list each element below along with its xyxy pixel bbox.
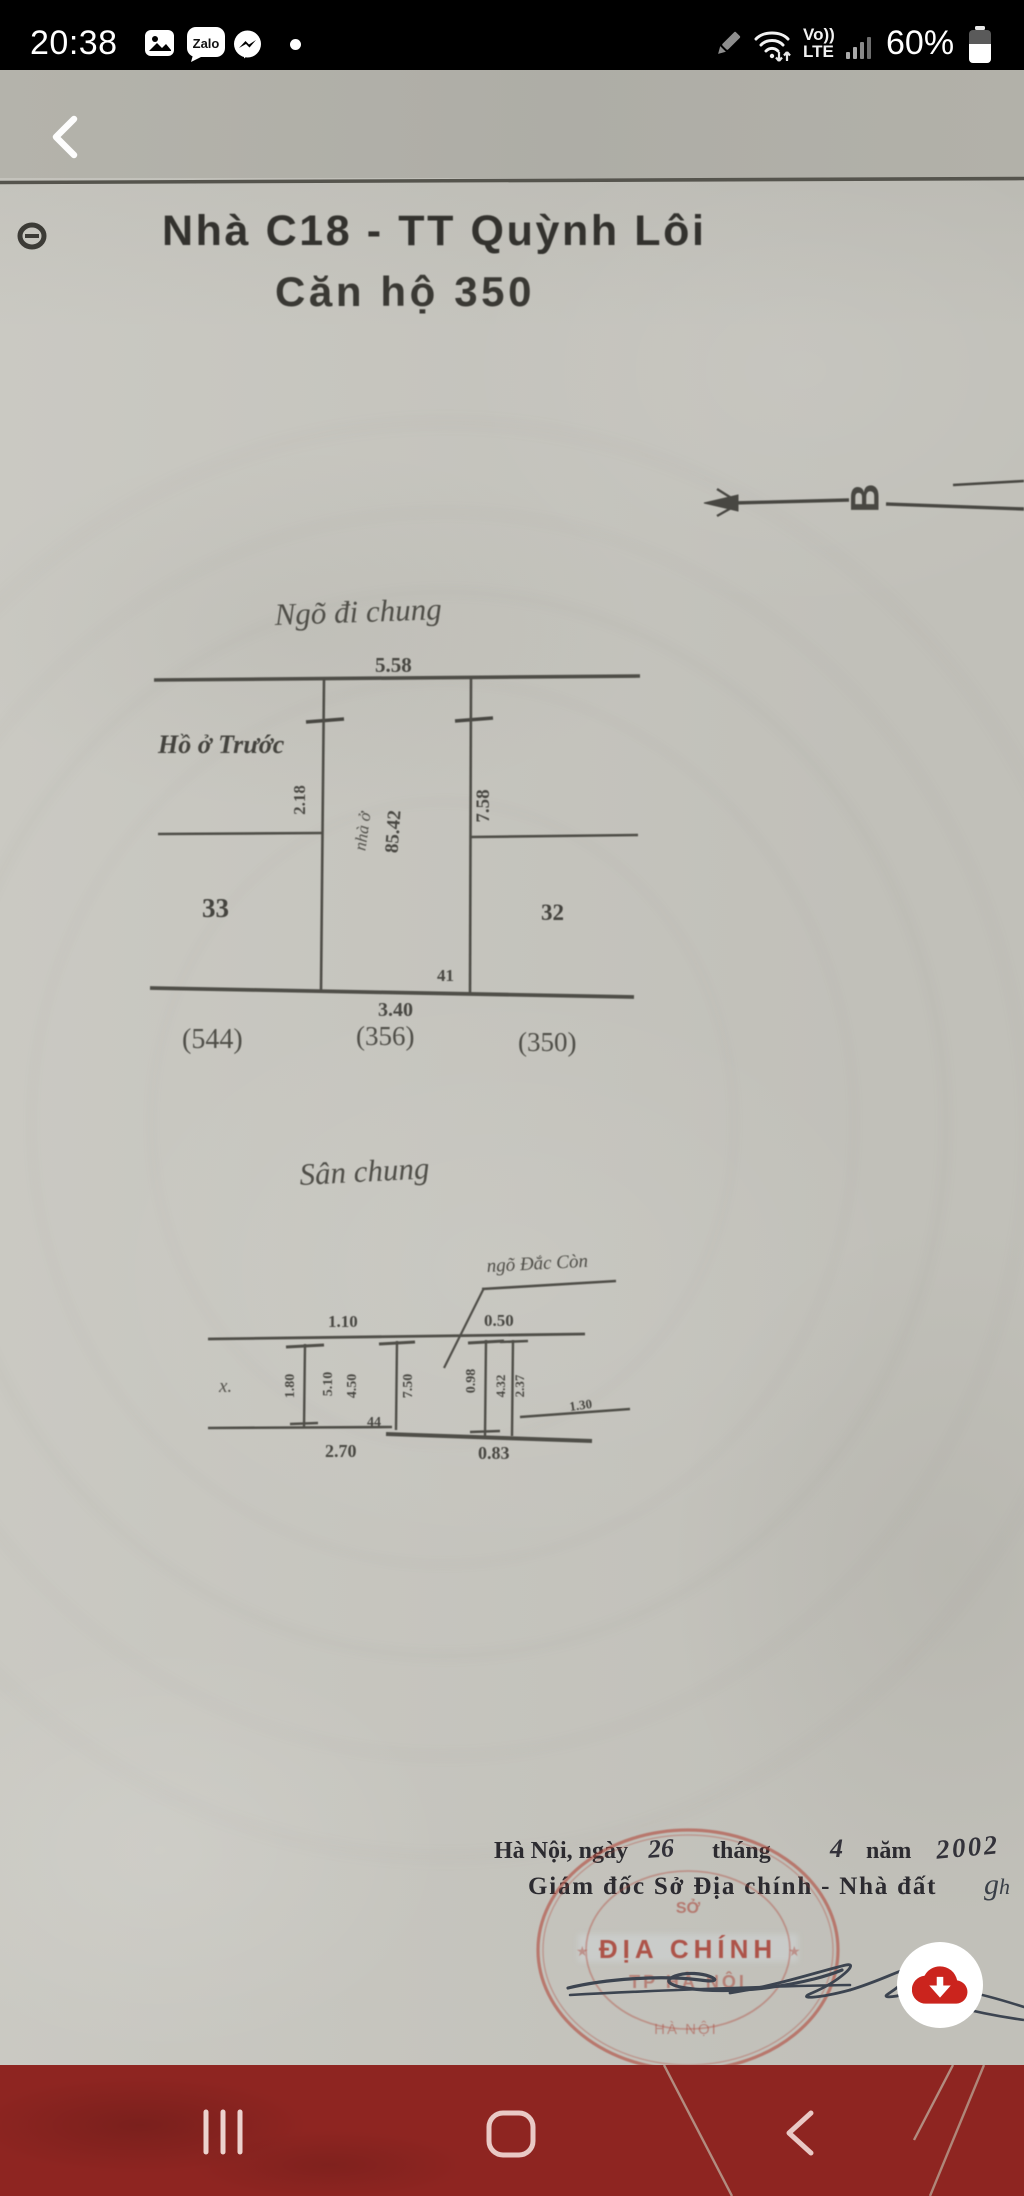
svg-text:(350): (350) — [518, 1027, 576, 1057]
svg-text:0.50: 0.50 — [484, 1311, 514, 1330]
svg-text:ngõ Đắc Còn: ngõ Đắc Còn — [486, 1251, 588, 1277]
svg-text:Sân chung: Sân chung — [299, 1150, 431, 1192]
svg-text:(544): (544) — [182, 1024, 243, 1055]
svg-text:1.10: 1.10 — [328, 1312, 358, 1331]
svg-text:1.30: 1.30 — [568, 1396, 593, 1414]
svg-text:2.18: 2.18 — [290, 785, 309, 815]
svg-text:7.50: 7.50 — [401, 1374, 416, 1399]
svg-text:SỞ: SỞ — [676, 1898, 701, 1917]
svg-text:7.58: 7.58 — [473, 789, 494, 822]
svg-text:2.70: 2.70 — [325, 1441, 357, 1461]
svg-text:0.98: 0.98 — [464, 1369, 479, 1394]
svg-text:85.42: 85.42 — [382, 810, 406, 854]
svg-text:x.: x. — [218, 1376, 232, 1397]
svg-text:0.83: 0.83 — [478, 1443, 510, 1463]
svg-text:33: 33 — [202, 893, 229, 923]
svg-text:32: 32 — [541, 900, 564, 925]
svg-text:Hồ ở Trước: Hồ ở Trước — [157, 730, 285, 759]
svg-text:5.10: 5.10 — [321, 1372, 336, 1397]
svg-text:3.40: 3.40 — [378, 999, 413, 1021]
svg-text:(356): (356) — [356, 1021, 414, 1051]
svg-text:4.50: 4.50 — [345, 1374, 360, 1399]
svg-text:4.32: 4.32 — [493, 1375, 508, 1398]
svg-text:5.58: 5.58 — [375, 653, 412, 677]
svg-text:nhà ở: nhà ở — [350, 810, 374, 852]
svg-text:2.37: 2.37 — [512, 1374, 527, 1397]
svg-text:41: 41 — [437, 966, 454, 985]
svg-text:Ngõ đi chung: Ngõ đi chung — [273, 591, 442, 632]
svg-text:1.80: 1.80 — [283, 1374, 298, 1399]
svg-text:B: B — [844, 484, 888, 513]
